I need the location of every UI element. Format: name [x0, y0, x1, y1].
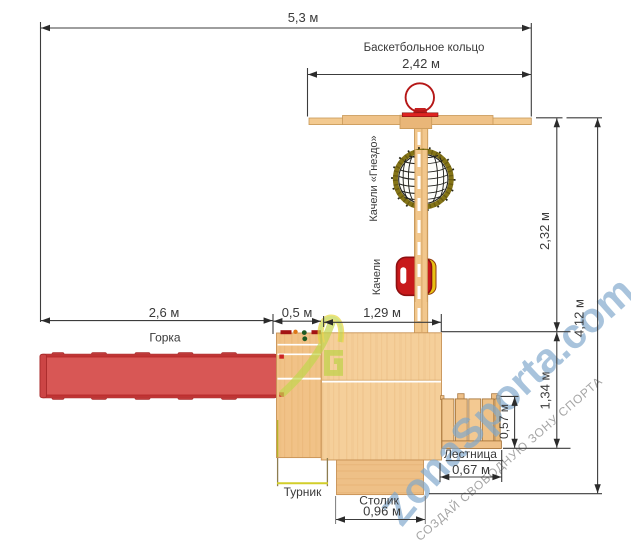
svg-text:1,34 м: 1,34 м [538, 372, 553, 410]
svg-text:5,3 м: 5,3 м [288, 10, 319, 25]
svg-text:Баскетбольное кольцо: Баскетбольное кольцо [364, 42, 485, 54]
svg-text:Турник: Турник [284, 485, 323, 499]
svg-text:Горка: Горка [149, 331, 181, 345]
svg-text:2,6 м: 2,6 м [149, 305, 180, 320]
svg-text:4,12 м: 4,12 м [572, 299, 587, 337]
svg-text:0,57 м: 0,57 м [497, 404, 511, 439]
svg-text:Лестница: Лестница [444, 447, 497, 461]
svg-text:0,67 м: 0,67 м [452, 462, 490, 477]
svg-text:2,42 м: 2,42 м [402, 56, 440, 71]
svg-text:0,96 м: 0,96 м [363, 504, 401, 519]
svg-text:Качели: Качели [371, 259, 383, 295]
svg-text:2,32 м: 2,32 м [537, 212, 552, 250]
svg-text:0,5 м: 0,5 м [282, 305, 313, 320]
svg-text:1,29 м: 1,29 м [363, 305, 401, 320]
svg-text:Качели «Гнездо»: Качели «Гнездо» [368, 135, 380, 221]
